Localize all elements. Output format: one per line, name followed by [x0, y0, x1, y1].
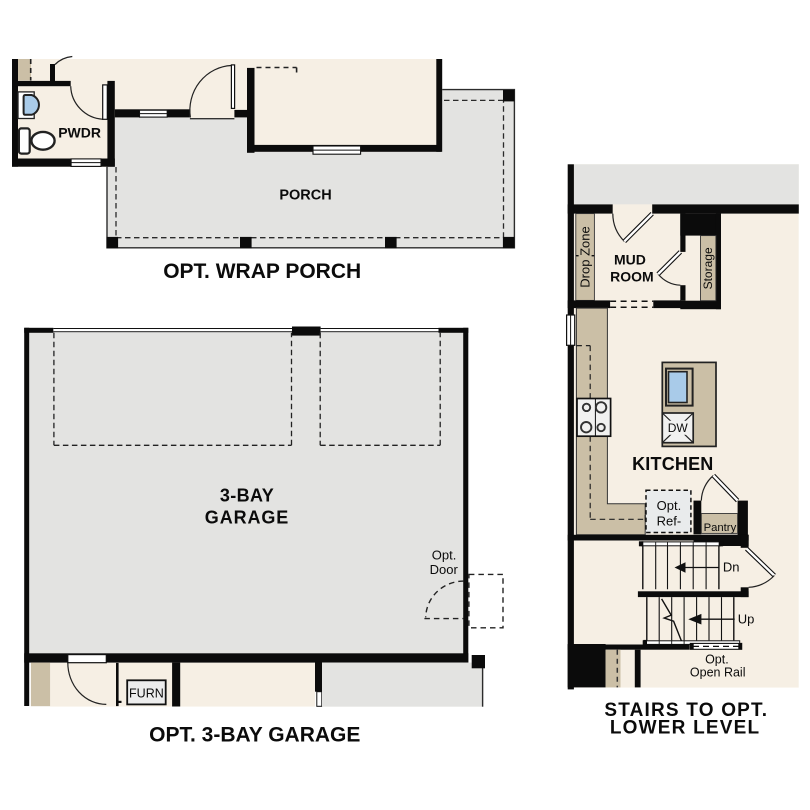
- svg-text:DW: DW: [668, 421, 689, 435]
- svg-text:Dn: Dn: [723, 560, 740, 575]
- svg-text:Opt.: Opt.: [657, 498, 682, 513]
- svg-text:Opt.: Opt.: [432, 547, 457, 562]
- svg-text:Door: Door: [430, 562, 459, 577]
- svg-text:GARAGE: GARAGE: [205, 508, 289, 528]
- svg-text:Drop Zone: Drop Zone: [577, 226, 592, 287]
- svg-text:FURN: FURN: [129, 687, 164, 701]
- svg-text:Storage: Storage: [701, 247, 715, 289]
- svg-text:LOWER LEVEL: LOWER LEVEL: [610, 718, 760, 739]
- svg-text:ROOM: ROOM: [610, 268, 654, 284]
- svg-text:Pantry: Pantry: [704, 522, 737, 534]
- svg-text:Opt.: Opt.: [705, 653, 729, 667]
- svg-text:3-BAY: 3-BAY: [220, 485, 274, 505]
- svg-text:Up: Up: [738, 611, 755, 626]
- svg-text:PORCH: PORCH: [279, 188, 331, 204]
- svg-text:OPT. 3-BAY GARAGE: OPT. 3-BAY GARAGE: [149, 723, 360, 746]
- svg-text:Open Rail: Open Rail: [690, 666, 746, 680]
- svg-text:MUD: MUD: [614, 251, 646, 267]
- svg-text:KITCHEN: KITCHEN: [632, 454, 713, 474]
- svg-text:Ref-: Ref-: [657, 513, 682, 528]
- svg-text:PWDR: PWDR: [58, 124, 101, 140]
- svg-text:OPT. WRAP PORCH: OPT. WRAP PORCH: [163, 260, 361, 283]
